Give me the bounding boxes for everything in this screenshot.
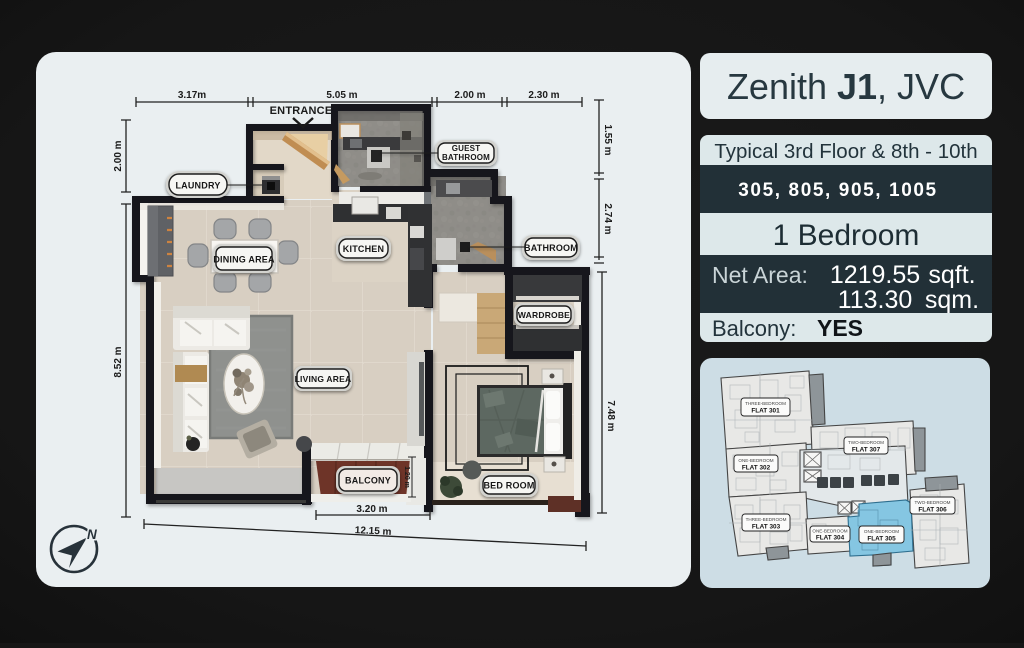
- svg-text:sqft.: sqft.: [928, 261, 975, 289]
- svg-text:ONE-BEDROOM: ONE-BEDROOM: [864, 529, 899, 534]
- svg-text:Zenith J1, JVC: Zenith J1, JVC: [727, 66, 965, 107]
- svg-text:ONE-BEDROOM: ONE-BEDROOM: [738, 458, 773, 463]
- svg-text:2.74 m: 2.74 m: [602, 203, 613, 234]
- svg-text:LIVING AREA: LIVING AREA: [295, 374, 352, 384]
- svg-text:BALCONY: BALCONY: [345, 476, 391, 486]
- svg-text:GUEST: GUEST: [452, 144, 481, 153]
- svg-text:3.20 m: 3.20 m: [356, 504, 387, 515]
- svg-text:Balcony:: Balcony:: [712, 316, 796, 341]
- svg-text:WARDROBE: WARDROBE: [518, 310, 570, 320]
- svg-text:305, 805, 905, 1005: 305, 805, 905, 1005: [738, 180, 937, 201]
- svg-text:7.48 m: 7.48 m: [605, 400, 616, 431]
- svg-text:8.52 m: 8.52 m: [113, 346, 124, 377]
- svg-text:LAUNDRY: LAUNDRY: [175, 181, 220, 191]
- svg-text:FLAT 305: FLAT 305: [867, 536, 896, 543]
- svg-text:BATHROOM: BATHROOM: [524, 243, 578, 253]
- svg-text:FLAT 303: FLAT 303: [752, 524, 781, 531]
- svg-text:THREE-BEDROOM: THREE-BEDROOM: [745, 401, 786, 406]
- svg-text:FLAT 302: FLAT 302: [742, 465, 771, 472]
- svg-text:2.00 m: 2.00 m: [113, 140, 124, 171]
- svg-text:12.15 m: 12.15 m: [355, 525, 392, 538]
- svg-text:FLAT 304: FLAT 304: [816, 535, 845, 542]
- svg-text:YES: YES: [817, 315, 863, 341]
- svg-text:FLAT 307: FLAT 307: [852, 447, 881, 454]
- svg-text:DINING AREA: DINING AREA: [213, 255, 275, 265]
- svg-text:ONE-BEDROOM: ONE-BEDROOM: [812, 529, 847, 534]
- svg-text:1.55 m: 1.55 m: [602, 124, 613, 155]
- svg-text:1.20 m: 1.20 m: [403, 466, 410, 488]
- svg-text:2.30 m: 2.30 m: [528, 90, 559, 101]
- svg-text:Net Area:: Net Area:: [712, 262, 808, 288]
- svg-text:KITCHEN: KITCHEN: [343, 244, 384, 254]
- svg-text:FLAT 306: FLAT 306: [918, 507, 947, 514]
- svg-text:TWO-BEDROOM: TWO-BEDROOM: [848, 440, 884, 445]
- svg-text:113.30: 113.30: [838, 286, 913, 314]
- svg-text:BATHROOM: BATHROOM: [442, 153, 490, 162]
- svg-text:5.05 m: 5.05 m: [326, 90, 357, 101]
- svg-text:ENTRANCE: ENTRANCE: [270, 105, 333, 117]
- svg-text:sqm.: sqm.: [925, 286, 979, 314]
- svg-text:1219.55: 1219.55: [830, 261, 920, 289]
- svg-text:THREE-BEDROOM: THREE-BEDROOM: [746, 517, 787, 522]
- svg-text:2.00 m: 2.00 m: [454, 90, 485, 101]
- svg-text:1 Bedroom: 1 Bedroom: [773, 219, 920, 252]
- svg-text:FLAT 301: FLAT 301: [751, 408, 780, 415]
- svg-text:N: N: [87, 527, 97, 542]
- svg-text:BED ROOM: BED ROOM: [483, 481, 534, 491]
- svg-text:TWO-BEDROOM: TWO-BEDROOM: [915, 500, 951, 505]
- svg-text:Typical 3rd Floor & 8th - 10th: Typical 3rd Floor & 8th - 10th: [714, 140, 977, 163]
- svg-text:3.17m: 3.17m: [178, 90, 206, 101]
